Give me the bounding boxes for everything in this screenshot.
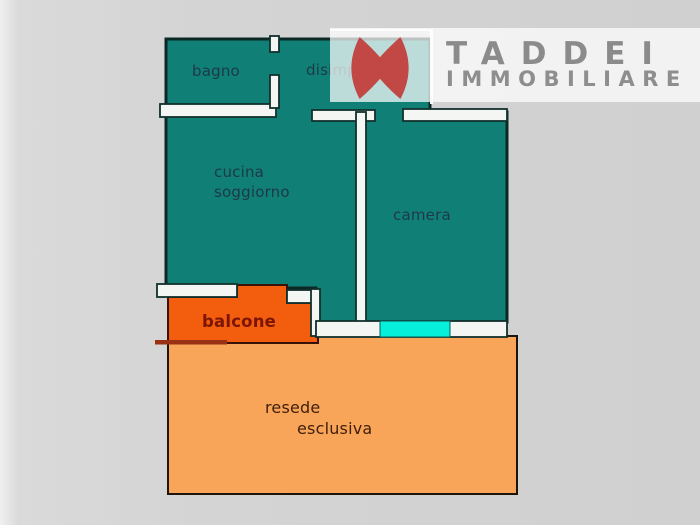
wall-segment [157,284,237,297]
garden-area [168,336,517,494]
logo-icon-box [330,29,433,104]
brand-logo-icon [336,35,424,101]
balcony-accent-line [155,340,227,345]
room-label-camera: camera [393,206,451,224]
wall-segment [403,109,507,121]
room-label-resede: resede [265,398,320,417]
wall-segment [270,75,279,108]
room-label-bagno: bagno [192,62,240,80]
room-label-soggiorno: soggiorno [214,183,290,201]
room-label-esclusiva: esclusiva [297,419,372,438]
wall-segment [270,36,279,52]
wall-segment [356,112,366,323]
wall-segment [160,104,276,117]
brand-subtitle: IMMOBILIARE [446,67,688,91]
floor-plan-page: bagno disimpegno cucina soggiorno camera… [0,0,700,525]
room-label-cucina: cucina [214,163,264,181]
logo-right-blade [374,36,408,98]
room-label-balcone: balcone [202,312,276,331]
window-marker [380,321,450,337]
